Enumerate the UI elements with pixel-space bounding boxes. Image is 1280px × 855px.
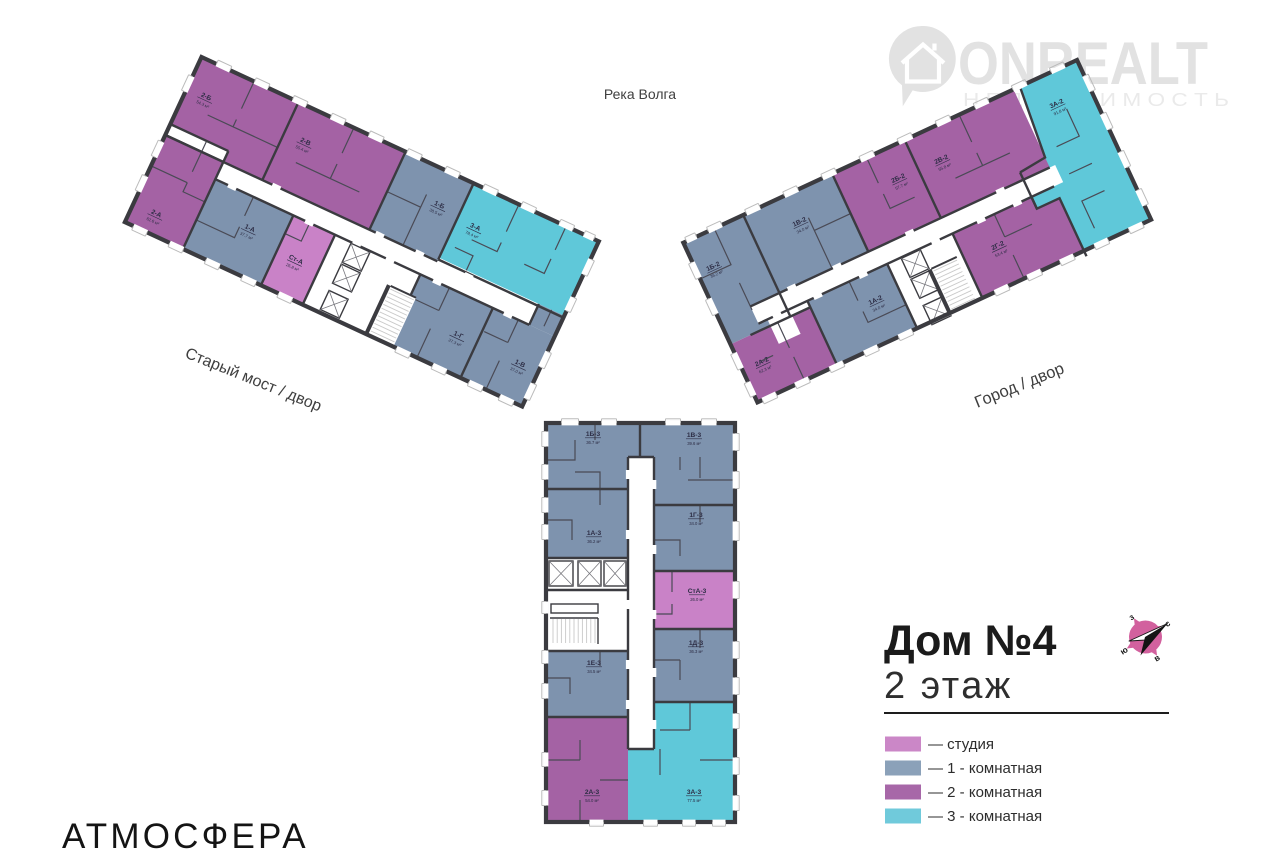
svg-text:34.5 м²: 34.5 м² [587, 669, 601, 674]
svg-text:1В-3: 1В-3 [687, 432, 702, 439]
svg-text:— 3 - комнатная: — 3 - комнатная [928, 808, 1042, 825]
svg-text:Дом №4: Дом №4 [884, 617, 1057, 665]
svg-text:26.0 м²: 26.0 м² [690, 597, 704, 602]
svg-text:54.0 м²: 54.0 м² [585, 798, 599, 803]
svg-text:3А-3: 3А-3 [687, 789, 702, 796]
svg-text:АТМОСФЕРА: АТМОСФЕРА [62, 817, 309, 855]
svg-text:Река Волга: Река Волга [604, 86, 676, 102]
svg-text:1Е-3: 1Е-3 [587, 660, 601, 667]
svg-text:39.6 м²: 39.6 м² [687, 441, 701, 446]
svg-text:77.5 м²: 77.5 м² [687, 798, 701, 803]
svg-text:1Д-3: 1Д-3 [689, 640, 704, 647]
svg-text:36.2 м²: 36.2 м² [587, 539, 601, 544]
svg-text:36.3 м²: 36.3 м² [689, 649, 703, 654]
svg-text:36.7 м²: 36.7 м² [586, 440, 600, 445]
svg-text:2А-3: 2А-3 [585, 789, 600, 796]
svg-text:34.0 м²: 34.0 м² [689, 521, 703, 526]
svg-text:— 1 - комнатная: — 1 - комнатная [928, 760, 1042, 777]
svg-text:1Б-3: 1Б-3 [586, 431, 601, 438]
svg-text:1А-3: 1А-3 [587, 530, 602, 537]
svg-text:2 этаж: 2 этаж [884, 665, 1013, 707]
svg-text:— студия: — студия [928, 736, 994, 753]
svg-text:1Г-3: 1Г-3 [689, 512, 703, 519]
svg-text:— 2 - комнатная: — 2 - комнатная [928, 784, 1042, 801]
svg-text:СтА-3: СтА-3 [688, 588, 707, 595]
